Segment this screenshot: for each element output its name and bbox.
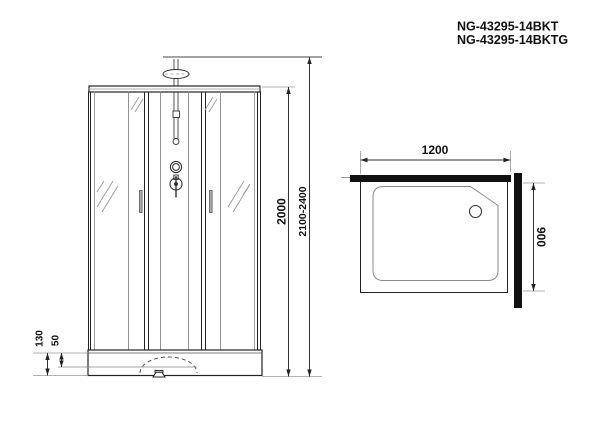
arrow-down	[307, 370, 311, 377]
drain-circle	[470, 206, 482, 218]
glass-hatch-mark	[97, 181, 104, 192]
drawing-page: 2000 2100-2400 130 50	[0, 0, 600, 424]
arrow-down	[45, 369, 49, 376]
arrow-up	[59, 353, 63, 360]
shower-tray	[58, 350, 262, 377]
arrow-right	[504, 158, 511, 162]
mixer-ring-inner	[173, 164, 180, 171]
dimension-900: 900	[523, 183, 548, 291]
arrow-down	[286, 370, 290, 377]
wall-back	[350, 175, 511, 182]
glass-hatch-mark	[97, 181, 113, 207]
dim-label-depth: 900	[534, 227, 548, 247]
arrow-left	[361, 158, 368, 162]
rod-slider	[173, 111, 180, 118]
tray-body	[88, 350, 262, 376]
top-view-diagram: 1200 900	[341, 143, 548, 308]
dim-label-width: 1200	[422, 143, 449, 157]
front-view-diagram: 2000 2100-2400 130 50	[33, 57, 322, 377]
wall-right	[514, 173, 522, 308]
faucet-knob-center	[174, 182, 178, 186]
arrow-up	[307, 57, 311, 64]
tray-plan-outline	[373, 187, 498, 281]
glass-hatch-mark	[228, 181, 244, 207]
arrow-down	[59, 361, 63, 368]
glass-hatch-mark	[243, 184, 250, 195]
product-code-line1: NG-43295-14BKT	[457, 20, 559, 34]
dim-label-total-height: 2100-2400	[297, 186, 309, 236]
door-handle-left	[140, 191, 143, 213]
arrow-up	[45, 353, 49, 360]
dimension-2000: 2000	[275, 87, 291, 377]
mixer-controls	[170, 161, 182, 197]
dimension-2100-2400: 2100-2400	[297, 57, 312, 377]
dimension-50: 50	[51, 335, 64, 367]
shower-riser-rod	[163, 59, 189, 145]
dim-label-cabin-height: 2000	[275, 198, 289, 225]
product-codes: NG-43295-14BKT NG-43295-14BKTG	[457, 20, 568, 48]
dim-label-tray-inner-depth: 50	[51, 335, 62, 347]
arrow-up	[286, 87, 290, 94]
tray-drain	[153, 371, 165, 378]
dim-label-tray-height: 130	[35, 330, 46, 347]
door-handle-right	[210, 191, 213, 213]
arrow-down	[531, 284, 535, 291]
dimension-1200: 1200	[361, 143, 511, 174]
technical-drawing-canvas: 2000 2100-2400 130 50	[0, 0, 600, 424]
product-code-line2: NG-43295-14BKTG	[457, 33, 568, 47]
arrow-up	[531, 183, 535, 190]
glass-hatch-mark	[102, 186, 118, 212]
rod-end-knob	[173, 139, 179, 145]
